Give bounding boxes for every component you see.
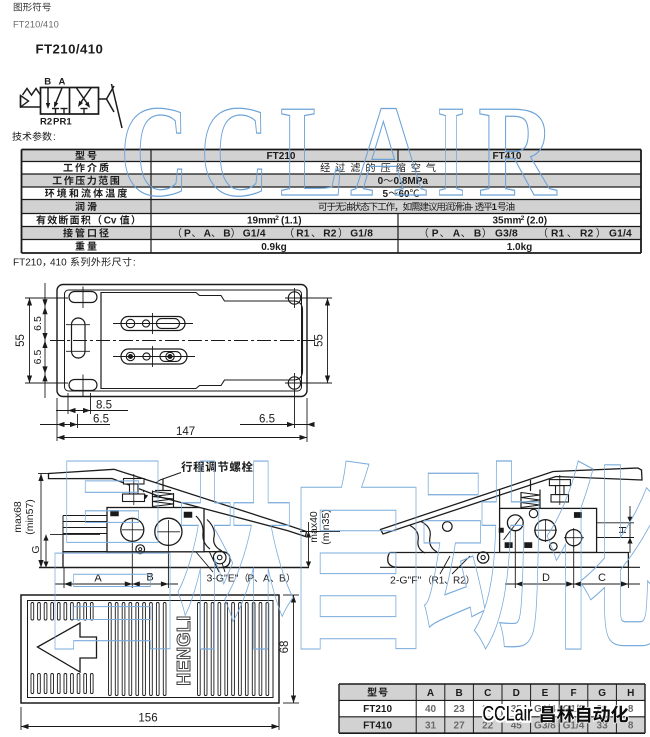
svg-text:G3/8: G3/8	[495, 229, 518, 240]
svg-text:P: P	[432, 229, 439, 240]
svg-text:-: -	[470, 202, 473, 213]
svg-text:C: C	[120, 79, 189, 224]
svg-text:A: A	[427, 688, 434, 699]
svg-text:R2: R2	[40, 117, 52, 128]
svg-text:2-G"F": 2-G"F"	[390, 575, 422, 587]
svg-text:B: B	[223, 229, 231, 240]
svg-text:31: 31	[425, 721, 437, 732]
svg-text:L: L	[280, 79, 344, 224]
svg-text:1.0kg: 1.0kg	[507, 242, 533, 253]
svg-text:G: G	[30, 545, 42, 553]
svg-text:0.9kg: 0.9kg	[261, 242, 287, 253]
svg-text:FT210/410: FT210/410	[36, 42, 104, 57]
svg-text:H: H	[627, 688, 634, 699]
svg-text:6.5: 6.5	[32, 316, 44, 331]
svg-text:8.5: 8.5	[96, 400, 112, 412]
svg-text:G: G	[598, 688, 606, 699]
svg-text:R: R	[478, 79, 557, 224]
svg-text:FT210: FT210	[363, 704, 392, 715]
svg-text:A: A	[204, 229, 212, 240]
svg-text:Cv: Cv	[104, 216, 117, 227]
svg-text:FT210: FT210	[13, 258, 42, 269]
svg-text:FT410: FT410	[363, 721, 392, 732]
svg-text:I: I	[437, 79, 465, 224]
svg-text:A: A	[453, 229, 461, 240]
svg-text:D: D	[542, 572, 550, 584]
svg-text:R2: R2	[323, 229, 337, 240]
svg-text:8: 8	[628, 704, 634, 715]
svg-text:R2: R2	[580, 229, 594, 240]
svg-text:HENGLI: HENGLI	[174, 615, 194, 685]
svg-text::: :	[133, 258, 136, 269]
svg-text:P: P	[184, 229, 191, 240]
svg-text:(min57): (min57)	[24, 499, 36, 535]
svg-text:max40: max40	[308, 511, 320, 543]
svg-text:40: 40	[425, 704, 437, 715]
svg-text:C: C	[598, 572, 606, 584]
svg-text:B: B	[44, 77, 51, 88]
svg-text:27: 27	[454, 721, 466, 732]
svg-text:B: B	[474, 229, 482, 240]
svg-text:A: A	[59, 77, 66, 88]
svg-text:G1/4: G1/4	[243, 229, 266, 240]
svg-text:C: C	[484, 688, 491, 699]
svg-text:R1: R1	[551, 229, 565, 240]
svg-text:A: A	[263, 574, 270, 585]
svg-text:C: C	[200, 79, 269, 224]
svg-text:FT210/410: FT210/410	[13, 20, 59, 30]
svg-text:23: 23	[454, 704, 466, 715]
svg-text:6.5: 6.5	[93, 414, 109, 426]
svg-text:G1/4: G1/4	[609, 229, 632, 240]
svg-text:(min35): (min35)	[320, 509, 332, 545]
svg-text:8: 8	[628, 721, 634, 732]
svg-text:B: B	[455, 688, 462, 699]
svg-text:68: 68	[279, 641, 291, 654]
svg-text:156: 156	[138, 713, 157, 725]
svg-text:410: 410	[50, 258, 67, 269]
svg-text:F: F	[570, 688, 576, 699]
svg-text:CCLair: CCLair	[483, 703, 533, 726]
svg-text:D: D	[513, 688, 520, 699]
svg-text:6.5: 6.5	[32, 350, 44, 365]
svg-text:R1: R1	[60, 117, 73, 128]
svg-text:147: 147	[176, 426, 195, 438]
svg-text:2: 2	[275, 215, 279, 222]
svg-text:55: 55	[314, 334, 326, 347]
svg-text::: :	[53, 132, 56, 143]
svg-text:R1: R1	[296, 229, 310, 240]
svg-text:55: 55	[15, 334, 27, 347]
svg-text:A: A	[350, 79, 427, 224]
svg-text:max68: max68	[12, 501, 24, 533]
svg-text:E: E	[542, 688, 549, 699]
svg-text:6.5: 6.5	[259, 414, 275, 426]
svg-text:G1/8: G1/8	[350, 229, 373, 240]
